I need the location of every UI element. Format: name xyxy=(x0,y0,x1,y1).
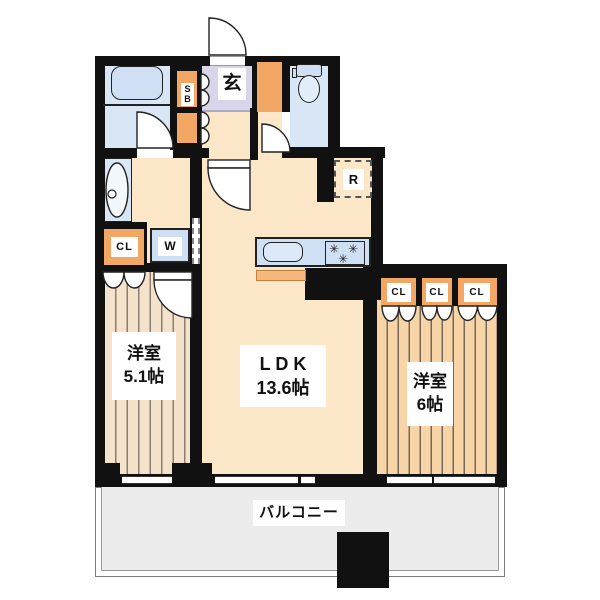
wall-hall-left-stub xyxy=(195,148,209,158)
closet-right-label-1: CL xyxy=(387,283,411,302)
ldk-label: L D K 13.6帖 xyxy=(240,345,326,407)
refrigerator-label: R xyxy=(343,169,364,190)
bedroom-left-area: 5.1帖 xyxy=(124,366,165,389)
wall-hall-stub xyxy=(250,108,258,160)
shoe-box-cabinet-lower xyxy=(176,112,198,144)
bedroom-left-label: 洋室 5.1帖 xyxy=(112,332,176,400)
washing-machine-label-text: W xyxy=(164,238,175,254)
bathroom... genkan-label: 玄 xyxy=(218,68,246,100)
bedroom-right-area: 6帖 xyxy=(417,394,443,417)
bathtub-icon xyxy=(111,66,163,100)
window-mullion xyxy=(298,476,301,484)
balcony-label: バルコニー xyxy=(253,500,345,526)
toilet-nook-floor xyxy=(258,112,282,158)
shoe-box-label-b: B xyxy=(184,95,191,105)
entrance-threshold xyxy=(210,56,245,66)
closet-left-label: CL xyxy=(111,237,138,257)
floor-plan: ✳ ✳ ✳ xyxy=(0,0,600,600)
refrigerator-label-text: R xyxy=(349,171,358,189)
sliding-door-washroom xyxy=(192,218,200,264)
closet-left-label-text: CL xyxy=(116,240,133,255)
wall-ldk-right-upper xyxy=(371,147,383,268)
washing-machine-label: W xyxy=(158,237,182,256)
stove-burner-icon: ✳ xyxy=(338,253,348,265)
window-bedroom-right-2 xyxy=(434,476,495,484)
balcony-pillar xyxy=(337,532,389,588)
wall-toilet-right xyxy=(328,56,340,158)
wall-washroom-ldk xyxy=(190,158,202,480)
closet-right-label-3: CL xyxy=(464,283,490,302)
vanity-counter xyxy=(103,158,132,222)
bedroom-right-label: 洋室 6帖 xyxy=(407,362,453,426)
wall-bedroom-right-left xyxy=(363,278,377,480)
closet-right-label-text: CL xyxy=(391,286,406,300)
entrance-door-arc xyxy=(209,18,246,55)
toilet-bowl-icon xyxy=(298,75,320,103)
closet-right-label-2: CL xyxy=(426,283,448,302)
shoe-box-label: S B xyxy=(181,83,194,106)
wall-bottom-mid-pillar xyxy=(172,463,212,487)
wall-bath-washroom-a xyxy=(95,148,137,158)
ldk-area: 13.6帖 xyxy=(256,376,309,400)
bathroom-divider-line xyxy=(103,104,170,106)
window-bedroom-right-1 xyxy=(387,476,432,484)
wall-bedroom-right-top xyxy=(363,264,507,278)
wall-right-outer xyxy=(497,264,507,487)
kitchen-lower-cabinet xyxy=(256,270,306,281)
genkan-closet xyxy=(257,62,282,112)
closet-right-label-text: CL xyxy=(469,286,484,300)
bedroom-right-name: 洋室 xyxy=(413,371,447,394)
balcony-label-text: バルコニー xyxy=(259,503,339,523)
window-bedroom-left xyxy=(122,476,172,484)
ldk-floor xyxy=(202,158,371,476)
wall-kitchen-pillar xyxy=(317,147,334,202)
closet-right-label-text: CL xyxy=(429,286,444,300)
ldk-name: L D K xyxy=(260,352,307,376)
bedroom-left-name: 洋室 xyxy=(127,343,161,366)
hallway-floor xyxy=(202,112,250,162)
genkan-label-text: 玄 xyxy=(222,71,241,97)
kitchen-sink-icon xyxy=(263,242,303,262)
stove-burner-icon: ✳ xyxy=(348,243,358,255)
toilet-handle-icon xyxy=(292,68,297,78)
